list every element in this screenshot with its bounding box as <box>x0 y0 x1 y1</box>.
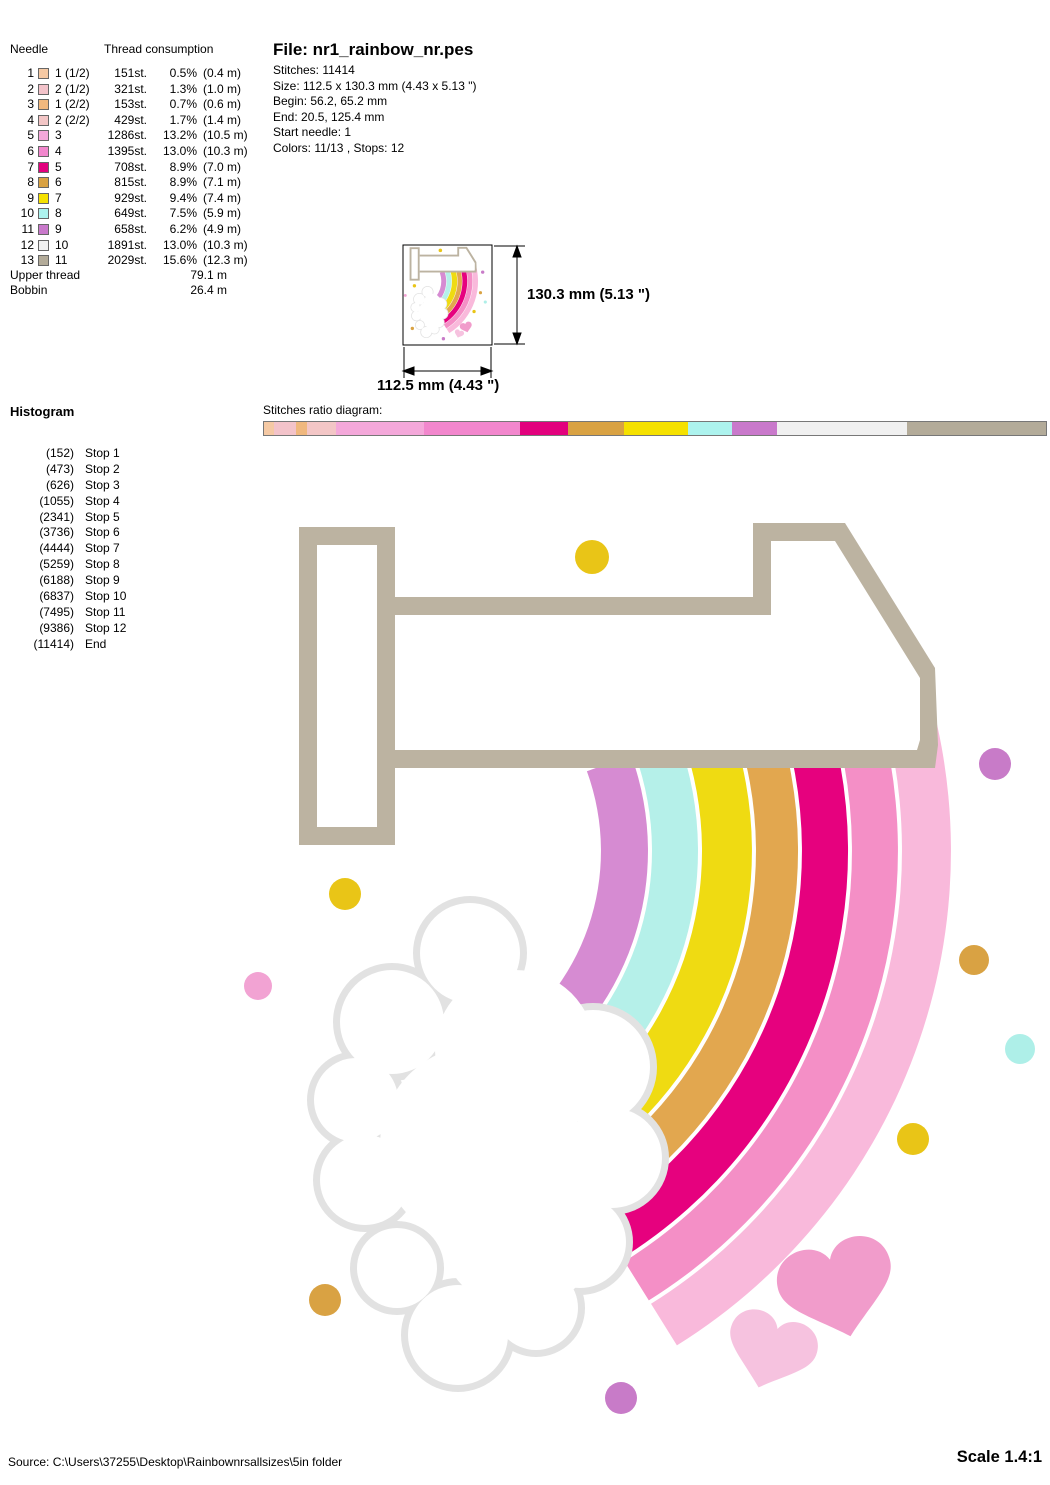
scale-label: Scale 1.4:1 <box>957 1448 1042 1467</box>
arrow-up-icon <box>513 246 521 257</box>
stitch-count: 151st. <box>95 66 147 82</box>
thumbnail-design <box>404 247 487 341</box>
heart-small <box>716 1303 824 1401</box>
stitch-percent: 13.2% <box>147 128 197 144</box>
thread-code: 3 <box>55 128 95 144</box>
histogram-item: (11414)End <box>8 637 126 653</box>
dot-gold-left <box>329 878 361 910</box>
dot-tan-right <box>959 945 989 975</box>
thread-length: (10.5 m) <box>197 128 248 144</box>
thread-length: (0.4 m) <box>197 66 241 82</box>
histogram-stitch-count: (2341) <box>8 510 74 526</box>
histogram-stop-label: Stop 4 <box>85 494 120 510</box>
arrow-right-icon <box>481 367 492 375</box>
thread-code: 9 <box>55 222 95 238</box>
thread-length: (4.9 m) <box>197 222 241 238</box>
file-info-line: End: 20.5, 125.4 mm <box>273 110 476 126</box>
stitch-percent: 15.6% <box>147 253 197 269</box>
histogram-stop-label: Stop 6 <box>85 525 120 541</box>
stitch-count: 321st. <box>95 82 147 98</box>
histogram-stop-label: Stop 7 <box>85 541 120 557</box>
histogram-item: (6837)Stop 10 <box>8 589 126 605</box>
histogram-title: Histogram <box>10 404 74 419</box>
thread-code: 7 <box>55 191 95 207</box>
needle-number: 2 <box>8 82 34 98</box>
histogram-stitch-count: (3736) <box>8 525 74 541</box>
thread-color-swatch <box>38 193 49 204</box>
stitch-count: 429st. <box>95 113 147 129</box>
arrow-left-icon <box>403 367 414 375</box>
ratio-segment-needle-7 <box>520 422 569 435</box>
needle-number: 4 <box>8 113 34 129</box>
histogram-item: (626)Stop 3 <box>8 478 126 494</box>
thread-code: 5 <box>55 160 95 176</box>
thread-length: (7.0 m) <box>197 160 241 176</box>
thread-code: 8 <box>55 206 95 222</box>
upper-thread-value: 79.1 m <box>150 268 227 284</box>
stitch-count: 2029st. <box>95 253 147 269</box>
stitch-percent: 6.2% <box>147 222 197 238</box>
needle-row: 31 (2/2)153st.0.7%(0.6 m) <box>8 97 248 113</box>
needle-number: 12 <box>8 238 34 254</box>
histogram-item: (9386)Stop 12 <box>8 621 126 637</box>
needle-number: 6 <box>8 144 34 160</box>
thread-code: 4 <box>55 144 95 160</box>
stitch-percent: 0.5% <box>147 66 197 82</box>
ratio-segment-needle-6 <box>424 422 520 435</box>
embroidery-design <box>244 523 1035 1414</box>
stitch-count: 1891st. <box>95 238 147 254</box>
ratio-diagram-label: Stitches ratio diagram: <box>263 403 382 419</box>
thread-color-swatch <box>38 162 49 173</box>
source-path: Source: C:\Users\37255\Desktop\Rainbownr… <box>8 1455 342 1471</box>
histogram-stop-label: Stop 1 <box>85 446 120 462</box>
histogram-stitch-count: (11414) <box>8 637 74 653</box>
histogram-stitch-count: (1055) <box>8 494 74 510</box>
file-info-line: Size: 112.5 x 130.3 mm (4.43 x 5.13 ") <box>273 79 476 95</box>
stitch-count: 929st. <box>95 191 147 207</box>
thread-color-swatch <box>38 68 49 79</box>
thread-color-swatch <box>38 255 49 266</box>
thread-length: (7.4 m) <box>197 191 241 207</box>
thread-length: (0.6 m) <box>197 97 241 113</box>
needle-number: 8 <box>8 175 34 191</box>
needle-row: 531286st.13.2%(10.5 m) <box>8 128 248 144</box>
needle-number: 11 <box>8 222 34 238</box>
stitch-count: 1286st. <box>95 128 147 144</box>
histogram-list: (152)Stop 1(473)Stop 2(626)Stop 3(1055)S… <box>8 446 126 653</box>
needle-row: 119658st.6.2%(4.9 m) <box>8 222 248 238</box>
arrow-down-icon <box>513 333 521 344</box>
stitch-count: 649st. <box>95 206 147 222</box>
thread-code: 2 (1/2) <box>55 82 95 98</box>
ratio-segment-needle-4 <box>307 422 336 435</box>
histogram-stitch-count: (9386) <box>8 621 74 637</box>
dot-gold-top <box>575 540 609 574</box>
bobbin-value: 26.4 m <box>150 283 227 299</box>
dot-pink-left <box>244 972 272 1000</box>
histogram-stop-label: Stop 12 <box>85 621 126 637</box>
needle-row: 641395st.13.0%(10.3 m) <box>8 144 248 160</box>
file-info-line: Start needle: 1 <box>273 125 476 141</box>
stitch-percent: 9.4% <box>147 191 197 207</box>
thread-code: 10 <box>55 238 95 254</box>
thread-color-swatch <box>38 115 49 126</box>
thread-code: 11 <box>55 253 95 269</box>
stitch-count: 658st. <box>95 222 147 238</box>
file-info-line: Begin: 56.2, 65.2 mm <box>273 94 476 110</box>
needle-number: 7 <box>8 160 34 176</box>
thread-color-swatch <box>38 177 49 188</box>
needle-row: 108649st.7.5%(5.9 m) <box>8 206 248 222</box>
thread-length: (10.3 m) <box>197 238 248 254</box>
stitch-count: 1395st. <box>95 144 147 160</box>
stitch-percent: 8.9% <box>147 160 197 176</box>
histogram-stop-label: Stop 2 <box>85 462 120 478</box>
needle-row: 86815st.8.9%(7.1 m) <box>8 175 248 191</box>
histogram-stitch-count: (152) <box>8 446 74 462</box>
histogram-item: (6188)Stop 9 <box>8 573 126 589</box>
stitch-count: 153st. <box>95 97 147 113</box>
file-title: File: nr1_rainbow_nr.pes <box>273 40 473 60</box>
histogram-item: (7495)Stop 11 <box>8 605 126 621</box>
ratio-segment-needle-11 <box>732 422 777 435</box>
needle-row: 75708st.8.9%(7.0 m) <box>8 160 248 176</box>
histogram-stop-label: Stop 9 <box>85 573 120 589</box>
thread-length: (1.4 m) <box>197 113 241 129</box>
ratio-segment-needle-12 <box>777 422 907 435</box>
thread-length: (10.3 m) <box>197 144 248 160</box>
dot-tan-left <box>309 1284 341 1316</box>
needle-number: 10 <box>8 206 34 222</box>
histogram-stop-label: Stop 3 <box>85 478 120 494</box>
file-info-line: Stitches: 11414 <box>273 63 476 79</box>
histogram-stitch-count: (626) <box>8 478 74 494</box>
histogram-item: (5259)Stop 8 <box>8 557 126 573</box>
stitch-count: 815st. <box>95 175 147 191</box>
ratio-segment-needle-10 <box>688 422 732 435</box>
thread-color-swatch <box>38 84 49 95</box>
stitch-percent: 8.9% <box>147 175 197 191</box>
dot-cyan-right <box>1005 1034 1035 1064</box>
histogram-stitch-count: (6188) <box>8 573 74 589</box>
dot-orchid-right <box>979 748 1011 780</box>
stitch-percent: 0.7% <box>147 97 197 113</box>
histogram-stop-label: Stop 5 <box>85 510 120 526</box>
bobbin-label: Bobbin <box>10 283 47 299</box>
dot-orchid-bottom <box>605 1382 637 1414</box>
thread-length: (7.1 m) <box>197 175 241 191</box>
stitch-percent: 1.3% <box>147 82 197 98</box>
histogram-stitch-count: (5259) <box>8 557 74 573</box>
needle-number: 1 <box>8 66 34 82</box>
thread-color-swatch <box>38 224 49 235</box>
ratio-segment-needle-13 <box>907 422 1046 435</box>
thread-code: 2 (2/2) <box>55 113 95 129</box>
height-dimension-label: 130.3 mm (5.13 ") <box>527 286 650 303</box>
needle-number: 13 <box>8 253 34 269</box>
dot-gold-mid <box>897 1123 929 1155</box>
thread-code: 6 <box>55 175 95 191</box>
histogram-item: (152)Stop 1 <box>8 446 126 462</box>
ratio-segment-needle-5 <box>336 422 424 435</box>
histogram-stitch-count: (4444) <box>8 541 74 557</box>
thread-color-swatch <box>38 208 49 219</box>
upper-thread-label: Upper thread <box>10 268 80 284</box>
thread-color-swatch <box>38 146 49 157</box>
histogram-stop-label: Stop 8 <box>85 557 120 573</box>
histogram-stop-label: Stop 10 <box>85 589 126 605</box>
thread-code: 1 (2/2) <box>55 97 95 113</box>
histogram-item: (3736)Stop 6 <box>8 525 126 541</box>
needle-row: 97929st.9.4%(7.4 m) <box>8 191 248 207</box>
thread-length: (12.3 m) <box>197 253 248 269</box>
needle-number: 9 <box>8 191 34 207</box>
stitch-percent: 1.7% <box>147 113 197 129</box>
ratio-segment-needle-1 <box>264 422 274 435</box>
histogram-stitch-count: (6837) <box>8 589 74 605</box>
ratio-segment-needle-8 <box>568 422 624 435</box>
thread-color-swatch <box>38 99 49 110</box>
thread-color-swatch <box>38 130 49 141</box>
histogram-item: (4444)Stop 7 <box>8 541 126 557</box>
ratio-segment-needle-9 <box>624 422 688 435</box>
width-dimension-label: 112.5 mm (4.43 ") <box>377 377 499 394</box>
histogram-stop-label: Stop 11 <box>85 605 125 621</box>
thread-length: (5.9 m) <box>197 206 241 222</box>
needle-number: 5 <box>8 128 34 144</box>
stitch-percent: 13.0% <box>147 144 197 160</box>
numeral-serif-fill <box>317 545 377 827</box>
ratio-segment-needle-3 <box>296 422 306 435</box>
stitch-count: 708st. <box>95 160 147 176</box>
needle-row: 22 (1/2)321st.1.3%(1.0 m) <box>8 82 248 98</box>
histogram-stop-label: End <box>85 637 106 653</box>
histogram-item: (473)Stop 2 <box>8 462 126 478</box>
needle-table-header-consumption: Thread consumption <box>104 42 213 58</box>
thread-color-swatch <box>38 240 49 251</box>
stitch-percent: 7.5% <box>147 206 197 222</box>
ratio-segment-needle-2 <box>274 422 296 435</box>
histogram-item: (2341)Stop 5 <box>8 510 126 526</box>
thread-code: 1 (1/2) <box>55 66 95 82</box>
needle-row: 13112029st.15.6%(12.3 m) <box>8 253 248 269</box>
print-preview-page: Needle Thread consumption 11 (1/2)151st.… <box>0 0 1050 1485</box>
numeral-stem-fill <box>395 541 920 750</box>
file-info-lines: Stitches: 11414Size: 112.5 x 130.3 mm (4… <box>273 63 476 157</box>
needle-rows: 11 (1/2)151st.0.5%(0.4 m)22 (1/2)321st.1… <box>8 66 248 269</box>
needle-number: 3 <box>8 97 34 113</box>
histogram-stitch-count: (7495) <box>8 605 74 621</box>
histogram-stitch-count: (473) <box>8 462 74 478</box>
ratio-diagram-bar <box>263 421 1047 436</box>
file-info-line: Colors: 11/13 , Stops: 12 <box>273 141 476 157</box>
needle-row: 42 (2/2)429st.1.7%(1.4 m) <box>8 113 248 129</box>
needle-row: 12101891st.13.0%(10.3 m) <box>8 238 248 254</box>
needle-table-header-needle: Needle <box>10 42 48 58</box>
histogram-item: (1055)Stop 4 <box>8 494 126 510</box>
thread-length: (1.0 m) <box>197 82 241 98</box>
stitch-percent: 13.0% <box>147 238 197 254</box>
needle-row: 11 (1/2)151st.0.5%(0.4 m) <box>8 66 248 82</box>
